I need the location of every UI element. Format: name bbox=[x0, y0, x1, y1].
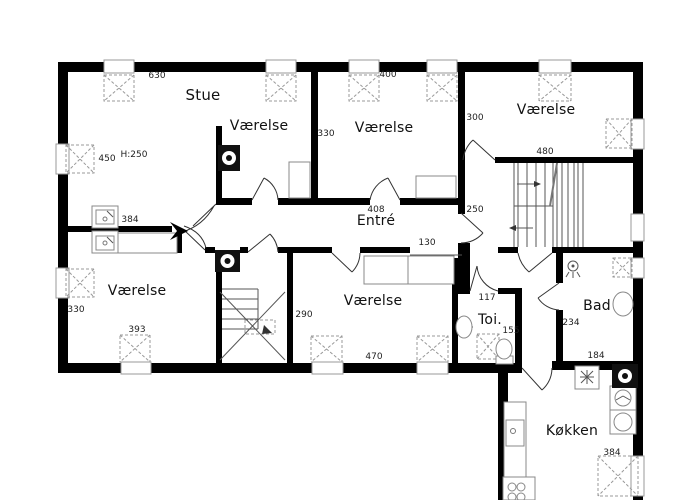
dim-label-vn-left: 330 bbox=[317, 129, 334, 139]
wall bbox=[205, 247, 215, 253]
window bbox=[427, 60, 457, 73]
wall bbox=[287, 247, 293, 373]
window bbox=[349, 60, 379, 73]
bed bbox=[408, 256, 454, 284]
window bbox=[312, 362, 343, 374]
window-marker-cross bbox=[66, 145, 94, 173]
stair-arrow-head bbox=[534, 181, 541, 187]
door-bad bbox=[538, 283, 559, 310]
dim-label-bad-bottom: 184 bbox=[587, 351, 604, 361]
window-marker-cross bbox=[104, 75, 134, 101]
floor-plan: Stue Værelse Værelse Værelse Værelse Vær… bbox=[0, 0, 700, 500]
wall bbox=[278, 198, 370, 205]
room-label-bad: Bad bbox=[583, 298, 611, 314]
dim-label-vsw-bottom: 393 bbox=[128, 325, 145, 335]
room-label-vaerelse-nw: Værelse bbox=[230, 118, 289, 134]
dim-label-vne-left: 300 bbox=[466, 113, 483, 123]
room-label-vaerelse-ne: Værelse bbox=[517, 102, 576, 118]
dim-label-bad-left: 234 bbox=[562, 318, 579, 328]
toilet-icon bbox=[496, 339, 512, 359]
door-stair-hall bbox=[461, 213, 483, 243]
window bbox=[56, 268, 69, 298]
window-marker-cross bbox=[311, 336, 342, 362]
wall bbox=[495, 157, 643, 163]
dim-label-vs-left: 290 bbox=[295, 310, 312, 320]
dim-label-stairhall-left: 250 bbox=[466, 205, 483, 215]
dim-label-toilet-top: 117 bbox=[478, 293, 495, 303]
shower-spray bbox=[566, 272, 569, 277]
door-koekken bbox=[522, 368, 552, 390]
window bbox=[266, 60, 296, 73]
wall bbox=[458, 62, 465, 205]
dim-label-stue-height: H:250 bbox=[121, 150, 148, 160]
wall bbox=[552, 247, 643, 253]
chimney-core bbox=[225, 258, 231, 264]
room-label-vaerelse-n: Værelse bbox=[355, 120, 414, 136]
window-marker-cross bbox=[606, 119, 632, 148]
dim-label-stue-left: 450 bbox=[98, 154, 115, 164]
window bbox=[631, 119, 644, 149]
window-marker-cross bbox=[266, 75, 296, 101]
window bbox=[631, 214, 644, 241]
wall bbox=[216, 198, 252, 205]
wall bbox=[458, 243, 470, 293]
wall bbox=[240, 247, 248, 253]
wall bbox=[400, 198, 463, 205]
dim-label-vestibule: 384 bbox=[121, 215, 138, 225]
sink-basin bbox=[96, 236, 114, 250]
window-marker-cross bbox=[539, 75, 571, 101]
dim-label-vs-bottom: 470 bbox=[365, 352, 382, 362]
room-label-stue: Stue bbox=[186, 86, 221, 104]
dim-label-entre-opening: 130 bbox=[418, 238, 435, 248]
washbasin-icon bbox=[613, 292, 633, 316]
room-label-toilet: Toi. bbox=[478, 312, 502, 328]
room-label-vaerelse-s: Værelse bbox=[344, 293, 403, 309]
door-vaerelse-s bbox=[332, 253, 360, 272]
window-marker-cross bbox=[349, 75, 379, 101]
window bbox=[56, 144, 69, 174]
wall bbox=[58, 62, 68, 373]
room-label-vaerelse-sw: Værelse bbox=[108, 283, 167, 299]
bed bbox=[364, 256, 408, 284]
stair-arrow-head bbox=[262, 325, 272, 334]
window bbox=[104, 60, 134, 73]
window-marker-cross bbox=[613, 258, 632, 277]
door-entre-double bbox=[182, 204, 216, 250]
dim-label-koekken-right: 384 bbox=[603, 448, 620, 458]
dim-label-toilet-bottom: 155 bbox=[502, 326, 519, 336]
dim-label-entre-width: 408 bbox=[367, 205, 384, 215]
window-marker-cross bbox=[427, 75, 457, 101]
door-toilet bbox=[470, 266, 498, 291]
door-corridor bbox=[518, 253, 552, 272]
window bbox=[539, 60, 571, 73]
dim-label-stairhall-top: 480 bbox=[536, 147, 553, 157]
washbasin-icon bbox=[456, 316, 472, 338]
shower-spray bbox=[577, 272, 580, 277]
door-vaerelse-ne bbox=[463, 140, 495, 160]
chimney-core bbox=[226, 155, 232, 161]
wall bbox=[278, 247, 332, 253]
dim-label-stue-top: 630 bbox=[148, 71, 165, 81]
wall bbox=[458, 205, 465, 214]
window-marker-cross bbox=[66, 269, 94, 297]
room-label-koekken: Køkken bbox=[546, 423, 598, 439]
wall bbox=[556, 253, 563, 283]
shower-icon-center bbox=[572, 265, 575, 268]
door-basement-stairs bbox=[248, 234, 278, 252]
door-vaerelse-n bbox=[370, 178, 400, 200]
dim-label-vsw-left: 330 bbox=[67, 305, 84, 315]
wall bbox=[453, 288, 470, 294]
bed bbox=[416, 176, 456, 198]
window-marker-cross bbox=[417, 336, 448, 362]
chimney-core bbox=[622, 373, 628, 379]
window bbox=[417, 362, 448, 374]
room-label-entre: Entré bbox=[357, 213, 395, 229]
window-marker-cross bbox=[477, 334, 499, 359]
wall bbox=[360, 247, 410, 253]
window bbox=[631, 258, 644, 278]
window-marker-cross bbox=[120, 335, 150, 362]
window bbox=[121, 362, 151, 374]
wall bbox=[498, 247, 518, 253]
door-vaerelse-nw bbox=[252, 178, 278, 200]
stair-arrow-head bbox=[509, 225, 516, 231]
wardrobe bbox=[289, 162, 310, 198]
dim-label-vn-top: 400 bbox=[379, 70, 396, 80]
